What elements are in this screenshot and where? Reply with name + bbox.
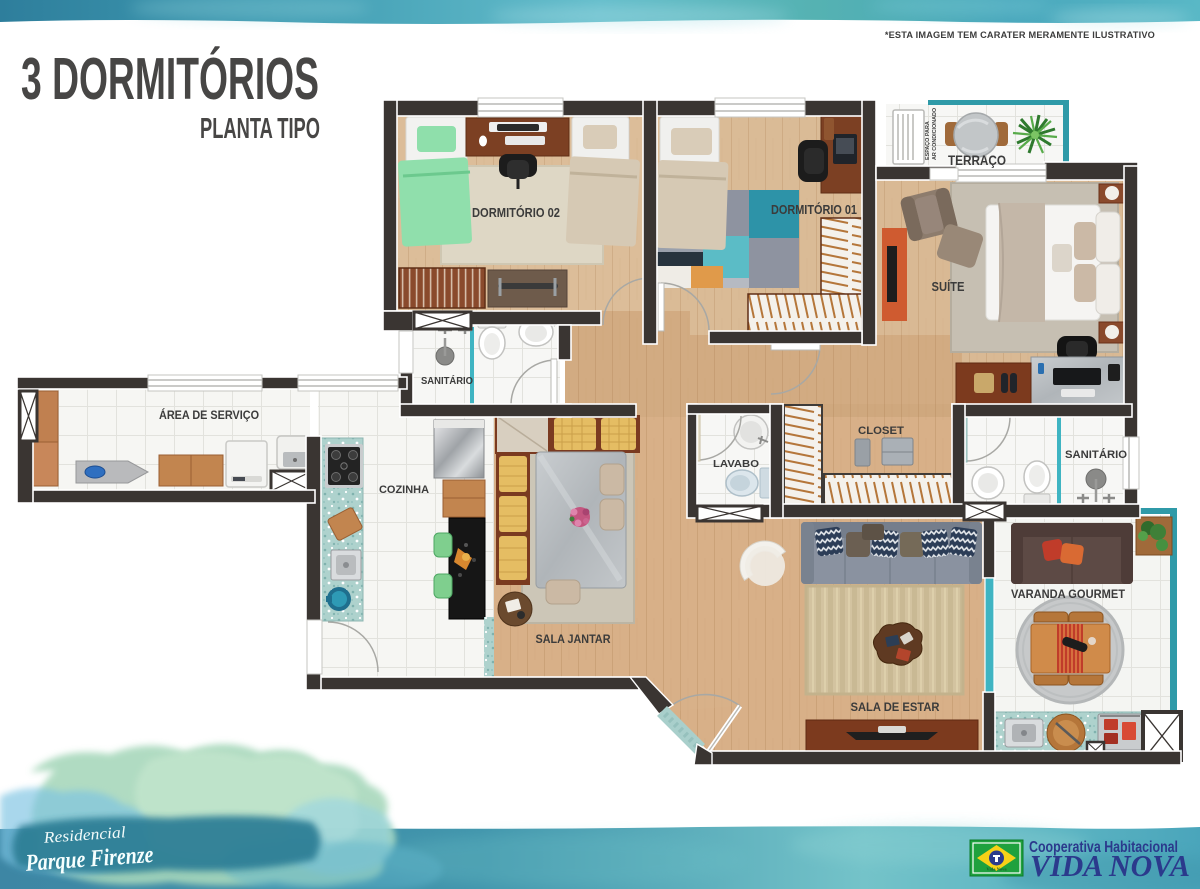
svg-text:SANITÁRIO: SANITÁRIO [1065,448,1127,461]
svg-text:DORMITÓRIO 01: DORMITÓRIO 01 [771,202,857,217]
svg-text:TERRAÇO: TERRAÇO [948,153,1006,168]
svg-text:PLANTA TIPO: PLANTA TIPO [200,113,320,145]
svg-text:COZINHA: COZINHA [379,484,429,496]
svg-text:SALA DE ESTAR: SALA DE ESTAR [851,700,940,714]
svg-text:LAVABO: LAVABO [713,458,759,470]
svg-text:AR CONDICIONADO: AR CONDICIONADO [932,108,938,160]
svg-text:ÁREA DE SERVIÇO: ÁREA DE SERVIÇO [159,409,259,422]
svg-text:VARANDA GOURMET: VARANDA GOURMET [1011,587,1126,601]
svg-text:Vida Nova: Vida Nova [986,867,1007,872]
svg-text:*ESTA IMAGEM TEM CARATER MERAM: *ESTA IMAGEM TEM CARATER MERAMENTE ILUST… [885,30,1155,40]
svg-text:SUÍTE: SUÍTE [932,279,965,294]
svg-text:CLOSET: CLOSET [858,425,904,437]
svg-text:SALA JANTAR: SALA JANTAR [536,634,612,646]
svg-text:DORMITÓRIO 02: DORMITÓRIO 02 [472,205,560,220]
svg-text:SANITÁRIO: SANITÁRIO [421,374,473,387]
svg-text:3 DORMITÓRIOS: 3 DORMITÓRIOS [21,46,319,112]
svg-text:ESPAÇO PARA: ESPAÇO PARA [925,121,931,160]
svg-text:VIDA NOVA: VIDA NOVA [1030,848,1190,883]
